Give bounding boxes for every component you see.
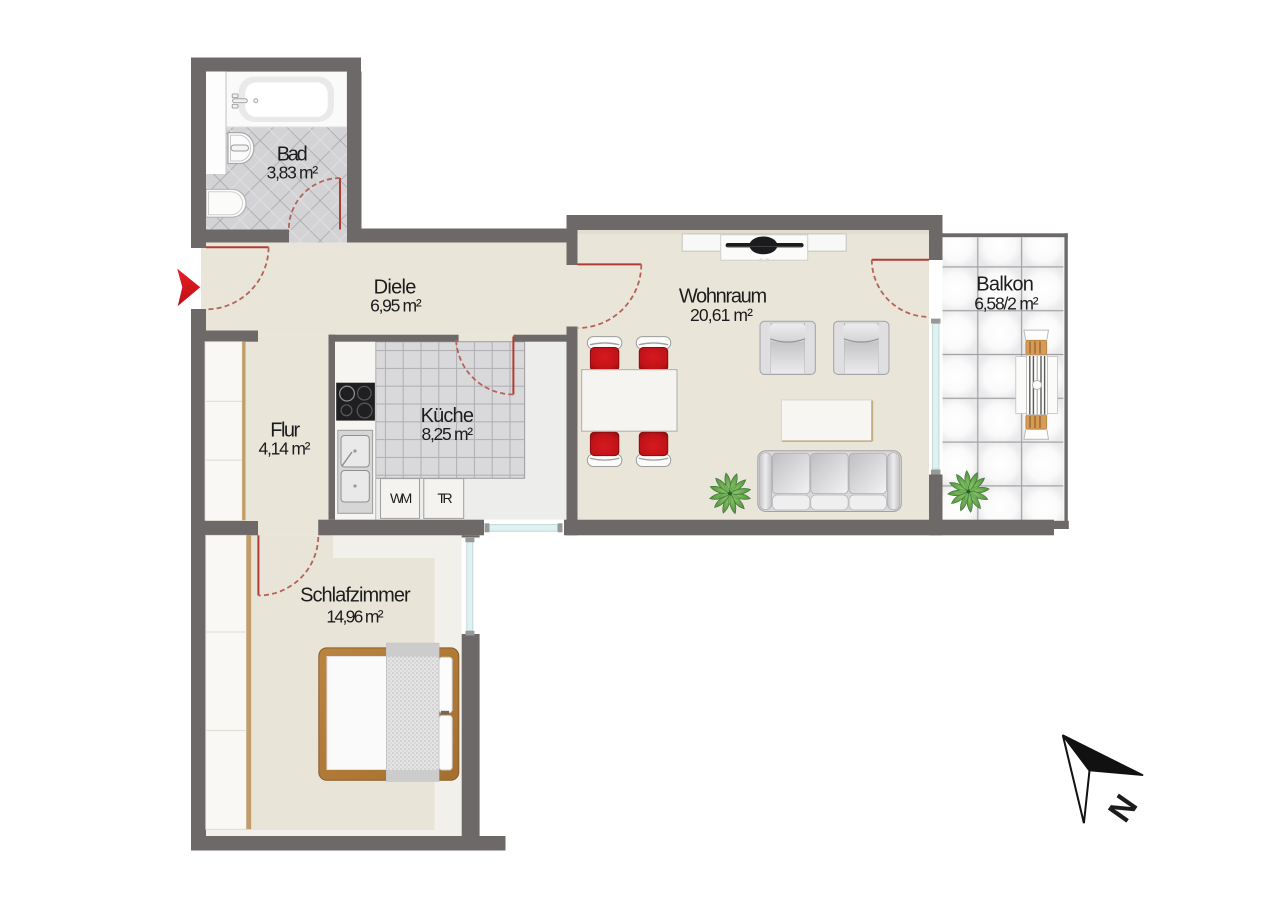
svg-text:4,14 m²: 4,14 m²: [259, 439, 311, 459]
svg-text:TR: TR: [437, 490, 452, 506]
svg-text:8,25 m²: 8,25 m²: [422, 424, 474, 444]
svg-text:20,61 m²: 20,61 m²: [690, 305, 753, 325]
svg-text:14,96 m²: 14,96 m²: [326, 607, 383, 627]
svg-text:6,58/2 m²: 6,58/2 m²: [974, 293, 1039, 313]
svg-text:3,83 m²: 3,83 m²: [267, 163, 319, 183]
svg-text:Schlafzimmer: Schlafzimmer: [300, 585, 411, 607]
svg-text:WM: WM: [390, 490, 412, 506]
svg-text:Balkon: Balkon: [976, 274, 1034, 296]
svg-text:N: N: [1101, 788, 1145, 829]
svg-text:6,95 m²: 6,95 m²: [370, 296, 422, 316]
